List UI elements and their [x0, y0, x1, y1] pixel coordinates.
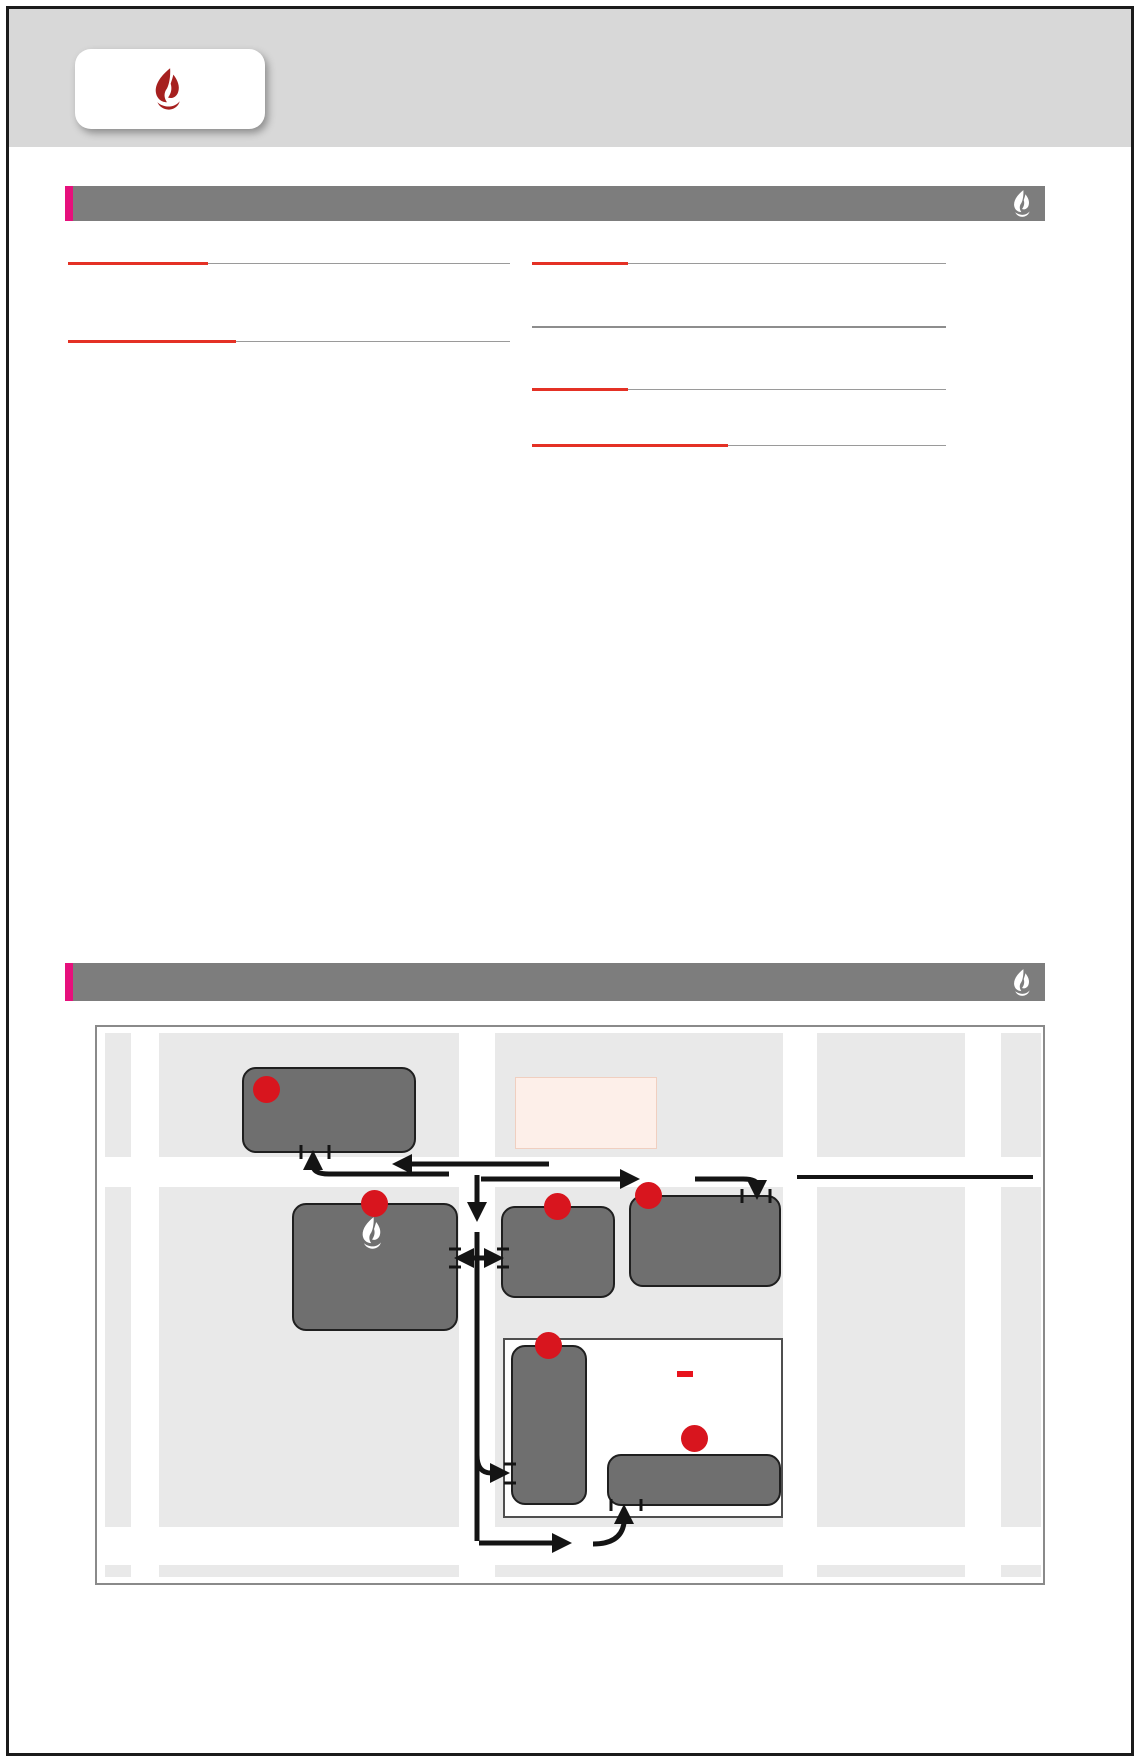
parking-box-leo-politi-5	[511, 1345, 587, 1505]
number-badge-3	[635, 1182, 662, 1209]
parking-box-leo-politi-6	[607, 1454, 781, 1506]
directions-section-header	[65, 963, 1045, 1001]
accent-stripe	[65, 963, 73, 1001]
city-block	[817, 1565, 965, 1577]
group-heading	[532, 438, 946, 446]
city-block	[105, 1033, 131, 1157]
tgi-bbq-building	[515, 1077, 657, 1149]
school-label	[589, 1361, 781, 1384]
city-block	[817, 1033, 965, 1157]
city-block	[105, 1187, 131, 1527]
group-heading	[68, 334, 510, 342]
city-block	[495, 1565, 783, 1577]
group-nextgen-ministry	[68, 334, 510, 342]
security-tag	[677, 1371, 693, 1377]
parking-box-church-lot	[292, 1203, 458, 1331]
retired-evangelist-row	[532, 288, 946, 328]
flame-icon	[359, 1217, 385, 1249]
group-adult-ministry	[68, 256, 510, 264]
flame-icon	[151, 67, 185, 111]
number-badge-1	[361, 1190, 388, 1217]
city-block	[1001, 1187, 1041, 1527]
accent-stripe	[65, 186, 73, 221]
group-heading	[532, 256, 946, 264]
church-info-page	[0, 0, 1140, 1762]
city-block	[105, 1565, 131, 1577]
church-logo	[75, 49, 265, 129]
city-block	[159, 1565, 459, 1577]
group-ministry-support	[532, 382, 946, 390]
city-block	[817, 1187, 965, 1527]
city-block	[1001, 1565, 1041, 1577]
number-badge-4	[253, 1076, 280, 1103]
number-badge-2	[544, 1193, 571, 1220]
header	[9, 9, 1131, 147]
flame-icon	[1011, 190, 1033, 217]
number-badge-5	[535, 1332, 562, 1359]
group-associate-pastors	[532, 256, 946, 264]
parking-box-samho-building	[629, 1195, 781, 1287]
city-block	[1001, 1033, 1041, 1157]
staff-section-header	[65, 186, 1045, 221]
group-heading	[68, 256, 510, 264]
flame-icon	[1011, 969, 1033, 996]
directions-map	[95, 1025, 1045, 1585]
parking-hours-info	[95, 1604, 1061, 1632]
staff-left-column	[68, 256, 510, 342]
group-heading	[532, 382, 946, 390]
group-academy	[532, 438, 946, 446]
number-badge-6	[681, 1425, 708, 1452]
parking-box-eden-auto	[242, 1067, 416, 1153]
staff-right-column	[532, 256, 946, 446]
